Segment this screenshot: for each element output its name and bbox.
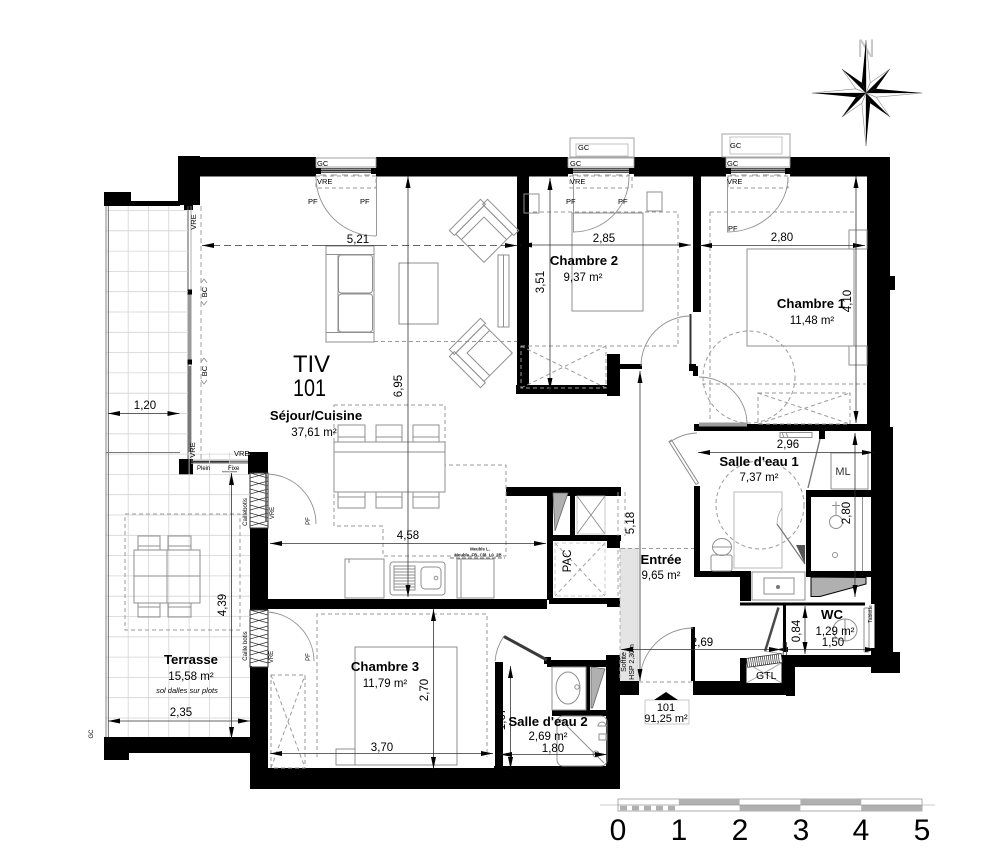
svg-text:VRE: VRE <box>270 507 276 519</box>
svg-text:GC: GC <box>570 159 582 168</box>
svg-text:Entrée: Entrée <box>640 552 681 567</box>
svg-text:Séjour/Cuisine: Séjour/Cuisine <box>270 408 362 423</box>
svg-text:2,35: 2,35 <box>170 707 192 719</box>
svg-text:Chambre 3: Chambre 3 <box>351 659 419 674</box>
svg-text:PF: PF <box>728 224 738 233</box>
svg-text:Terrasse: Terrasse <box>164 652 218 667</box>
svg-text:VRE: VRE <box>727 177 742 186</box>
svg-text:0: 0 <box>610 814 627 847</box>
svg-text:1,50: 1,50 <box>822 637 844 649</box>
svg-text:37,61 m²: 37,61 m² <box>291 427 337 439</box>
svg-text:GC: GC <box>317 159 329 168</box>
svg-text:4,39: 4,39 <box>217 594 229 616</box>
svg-text:91,25 m²: 91,25 m² <box>644 713 688 725</box>
svg-text:BC: BC <box>200 365 209 376</box>
svg-text:Caille botis: Caille botis <box>243 631 249 660</box>
svg-text:Tablette: Tablette <box>868 605 874 623</box>
svg-text:PF: PF <box>618 197 628 206</box>
svg-text:11,48 m²: 11,48 m² <box>790 315 835 327</box>
svg-text:5,21: 5,21 <box>347 234 369 246</box>
svg-text:7,37 m²: 7,37 m² <box>740 472 779 484</box>
svg-text:5,18: 5,18 <box>625 512 637 534</box>
svg-text:3: 3 <box>793 814 810 847</box>
svg-text:PF: PF <box>306 653 312 661</box>
svg-text:2,70: 2,70 <box>419 679 431 701</box>
svg-text:2: 2 <box>732 814 749 847</box>
svg-text:VRE: VRE <box>189 214 198 229</box>
svg-text:1,80: 1,80 <box>542 743 564 755</box>
svg-text:6,95: 6,95 <box>393 375 405 397</box>
svg-text:PF: PF <box>308 197 318 206</box>
svg-text:ML: ML <box>835 466 850 478</box>
svg-text:GC: GC <box>730 141 742 150</box>
svg-text:Chambre 1: Chambre 1 <box>777 296 845 311</box>
svg-text:15,58 m²: 15,58 m² <box>168 671 214 683</box>
svg-text:Soffite: Soffite <box>621 652 628 672</box>
svg-text:3,70: 3,70 <box>371 742 393 754</box>
svg-text:1: 1 <box>671 814 688 847</box>
svg-text:2,80: 2,80 <box>771 232 793 244</box>
svg-text:Caillebotis: Caillebotis <box>243 498 249 526</box>
svg-text:101: 101 <box>293 375 326 402</box>
svg-text:VRE: VRE <box>570 177 585 186</box>
svg-text:5: 5 <box>914 814 931 847</box>
svg-text:WC: WC <box>821 607 843 622</box>
svg-text:1,29 m²: 1,29 m² <box>816 626 855 638</box>
svg-text:PF: PF <box>306 517 312 525</box>
svg-text:sol dalles sur plots: sol dalles sur plots <box>156 686 218 695</box>
svg-text:4,58: 4,58 <box>397 530 419 542</box>
svg-text:2,96: 2,96 <box>777 439 799 451</box>
svg-text:11,79 m²: 11,79 m² <box>363 678 408 690</box>
svg-text:PF: PF <box>566 197 576 206</box>
svg-text:GTL: GTL <box>756 670 777 682</box>
svg-text:Fixe: Fixe <box>228 466 240 472</box>
svg-text:2,69 m²: 2,69 m² <box>529 731 568 743</box>
svg-text:TIV: TIV <box>293 351 330 378</box>
svg-text:9,65 m²: 9,65 m² <box>642 570 681 582</box>
svg-text:Chambre 2: Chambre 2 <box>550 253 618 268</box>
svg-text:4: 4 <box>853 814 870 847</box>
svg-text:GC: GC <box>727 159 739 168</box>
svg-text:2,69: 2,69 <box>691 637 713 649</box>
svg-text:Meuble L.: Meuble L. <box>470 547 490 552</box>
svg-text:GC: GC <box>89 729 95 739</box>
svg-text:Salle d'eau 1: Salle d'eau 1 <box>719 454 798 469</box>
svg-text:VRE: VRE <box>188 442 197 457</box>
svg-text:PAC: PAC <box>562 550 574 573</box>
svg-text:0,84: 0,84 <box>791 619 803 642</box>
svg-text:Plein: Plein <box>197 466 210 472</box>
svg-text:VRE: VRE <box>317 177 332 186</box>
svg-text:HSP 2,30m: HSP 2,30m <box>629 644 636 680</box>
svg-text:VRE: VRE <box>234 449 249 458</box>
svg-text:Meuble_FB_Cl8_L0_2B: Meuble_FB_Cl8_L0_2B <box>454 553 501 558</box>
svg-text:PF: PF <box>360 197 370 206</box>
svg-text:2,85: 2,85 <box>593 233 615 245</box>
svg-text:BC: BC <box>200 286 209 297</box>
svg-text:9,37 m²: 9,37 m² <box>564 272 603 284</box>
svg-text:GC: GC <box>578 143 590 152</box>
svg-text:VRE: VRE <box>269 651 275 663</box>
svg-text:1,67: 1,67 <box>496 708 508 730</box>
svg-text:3,51: 3,51 <box>535 271 547 293</box>
svg-text:2,80: 2,80 <box>841 502 853 524</box>
svg-text:Salle d'eau 2: Salle d'eau 2 <box>508 714 587 729</box>
svg-text:1,20: 1,20 <box>134 400 156 412</box>
